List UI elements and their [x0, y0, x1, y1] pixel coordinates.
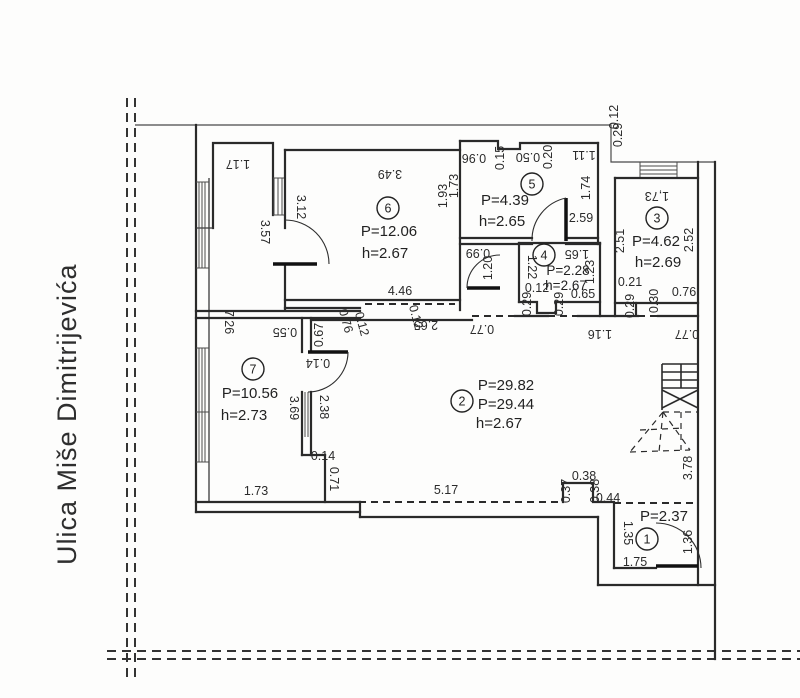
dimension-label: 1.20 [481, 256, 495, 280]
dimension-label: 0.29 [611, 123, 625, 147]
dimension-label: 0.29 [520, 292, 534, 316]
window-left-lower [196, 348, 209, 462]
dimension-label: 0.29 [552, 292, 566, 316]
dimension-label: 0.44 [596, 491, 620, 505]
dimension-label: 0.29 [623, 294, 637, 318]
room-number: 5 [529, 178, 536, 192]
dimension-label: 1,73 [645, 189, 669, 203]
street-name-label: Ulica Miše Dimitrijevića [52, 263, 82, 565]
floor-plan-svg: Ulica Miše Dimitrijevića [0, 0, 800, 698]
room-stat-label: P=10.56 [222, 385, 278, 402]
room-stat-label: h=2.73 [221, 407, 267, 424]
dimension-label: 0.77 [675, 327, 699, 341]
dimension-label: 1.11 [572, 148, 595, 162]
street-boundary-bottom [107, 651, 800, 659]
street-boundary-left [127, 98, 135, 683]
dimension-labels: 1.173.493.123.571.930.960.150.500.201.11… [222, 105, 699, 569]
room-number: 2 [459, 395, 466, 409]
dimension-label: 7.26 [222, 310, 236, 334]
dimension-label: 1.16 [588, 327, 612, 341]
dimension-label: 0.12 [406, 303, 426, 330]
dimension-label: 1.73 [244, 484, 268, 498]
dimension-label: 1.74 [579, 176, 593, 200]
dimension-label: 1.73 [447, 174, 461, 198]
room-stat-label: h=2.67 [476, 415, 522, 432]
room-stat-label: P=4.62 [632, 233, 680, 250]
room-6-annotation: 6P=12.06h=2.67 [361, 197, 417, 262]
room-number: 1 [644, 533, 651, 547]
room-number: 7 [250, 363, 257, 377]
room-stat-label: P=29.44 [478, 396, 534, 413]
room-7-annotation: 7P=10.56h=2.73 [221, 358, 278, 424]
dimension-label: 3.78 [681, 456, 695, 480]
bay-window [196, 143, 273, 228]
window-bay-to-room6 [273, 178, 285, 215]
dimension-label: 1.23 [583, 260, 597, 284]
dimension-label: 0.77 [470, 322, 494, 336]
room-stat-label: P=12.06 [361, 223, 417, 240]
room-stat-label: h=2.67 [362, 245, 408, 262]
room-stat-label: P=4.39 [481, 192, 529, 209]
dimension-label: 0.96 [462, 151, 486, 165]
room-stat-label: h=2.65 [479, 213, 525, 230]
dimension-label: 0.20 [541, 145, 555, 169]
window-left-upper [196, 182, 209, 268]
dimension-label: 4.46 [388, 284, 412, 298]
dimension-label: 5.17 [434, 483, 458, 497]
dimension-label: 3.69 [287, 396, 301, 420]
dimension-label: 2.38 [317, 395, 331, 419]
dimension-label: 3.12 [294, 195, 308, 219]
room-5-annotation: 5P=4.39h=2.65 [479, 173, 543, 230]
room-stat-label: P=2.37 [640, 508, 688, 525]
room-number: 3 [654, 212, 661, 226]
floor-plan-page: Ulica Miše Dimitrijevića [0, 0, 800, 698]
dimension-label: 0.21 [618, 275, 642, 289]
dimension-label: 0.76 [672, 285, 696, 299]
room-3-annotation: 3P=4.62h=2.69 [632, 207, 681, 271]
dimension-label: 1.65 [565, 247, 589, 261]
dimension-label: 1.75 [623, 555, 647, 569]
dimension-label: 0.67 [312, 323, 326, 347]
dimension-label: 0.50 [516, 150, 540, 164]
dimension-label: 3.57 [258, 220, 272, 244]
window-room3-top [640, 162, 677, 178]
dimension-label: 2.59 [569, 211, 593, 225]
dimension-label: 1.17 [226, 157, 250, 171]
dimension-label: 0.55 [273, 325, 297, 339]
dimension-label: 0.14 [306, 356, 330, 370]
dimension-label: 0.15 [493, 146, 507, 170]
dimension-label: 3.49 [378, 167, 402, 181]
door-room6 [273, 220, 329, 264]
dimension-label: 1.36 [681, 530, 695, 554]
dimension-label: 2.51 [613, 229, 627, 253]
staircase [630, 364, 698, 452]
room-stat-label: P=29.82 [478, 377, 534, 394]
room-stat-label: h=2.69 [635, 254, 681, 271]
dimension-label: 0.65 [571, 287, 595, 301]
door-room5 [532, 198, 566, 241]
window-room7-partition [305, 392, 308, 437]
dimension-label: 0.14 [311, 449, 335, 463]
dimension-label: 1.22 [525, 255, 539, 279]
dimension-label: 1.35 [621, 521, 635, 545]
dimension-label: 2.52 [682, 228, 696, 252]
room-number: 4 [541, 249, 548, 263]
dimension-label: 0.12 [352, 310, 372, 337]
room-number: 6 [385, 202, 392, 216]
dimension-label: 0.71 [327, 467, 341, 491]
dimension-label: 0.30 [647, 289, 661, 313]
room-2-annotation: 2P=29.82P=29.44h=2.67 [451, 377, 534, 432]
